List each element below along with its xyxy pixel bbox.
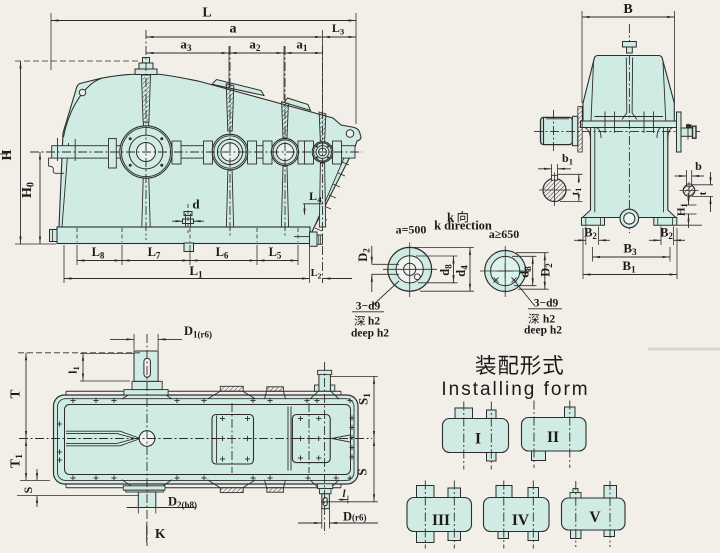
svg-text:T: T bbox=[8, 389, 23, 398]
svg-text:S: S bbox=[355, 468, 370, 475]
svg-text:B: B bbox=[623, 2, 632, 17]
svg-text:h2: h2 bbox=[368, 316, 380, 328]
svg-text:III: III bbox=[432, 512, 450, 529]
svg-text:t: t bbox=[697, 191, 709, 195]
svg-text:a=500: a=500 bbox=[396, 223, 427, 237]
svg-text:II: II bbox=[547, 429, 559, 446]
svg-text:a: a bbox=[230, 22, 237, 37]
svg-text:3−d9: 3−d9 bbox=[534, 298, 559, 310]
svg-text:L: L bbox=[309, 189, 317, 203]
svg-text:IV: IV bbox=[512, 512, 530, 529]
svg-text:L: L bbox=[202, 6, 211, 21]
svg-text:b: b bbox=[695, 159, 702, 173]
svg-text:Installing form: Installing form bbox=[441, 379, 589, 400]
svg-text:4: 4 bbox=[317, 195, 322, 205]
svg-text:3−d9: 3−d9 bbox=[356, 301, 381, 313]
svg-text:a≥650: a≥650 bbox=[489, 227, 520, 241]
svg-text:D(r6): D(r6) bbox=[343, 510, 367, 524]
svg-text:k direction: k direction bbox=[434, 219, 492, 233]
svg-text:deep h2: deep h2 bbox=[524, 325, 562, 337]
svg-text:V: V bbox=[589, 509, 601, 526]
svg-text:I: I bbox=[475, 431, 481, 448]
svg-text:K: K bbox=[155, 526, 166, 541]
svg-text:deep h2: deep h2 bbox=[351, 328, 389, 340]
svg-text:H: H bbox=[0, 149, 15, 160]
svg-text:S: S bbox=[21, 486, 35, 493]
svg-text:d: d bbox=[192, 197, 200, 212]
